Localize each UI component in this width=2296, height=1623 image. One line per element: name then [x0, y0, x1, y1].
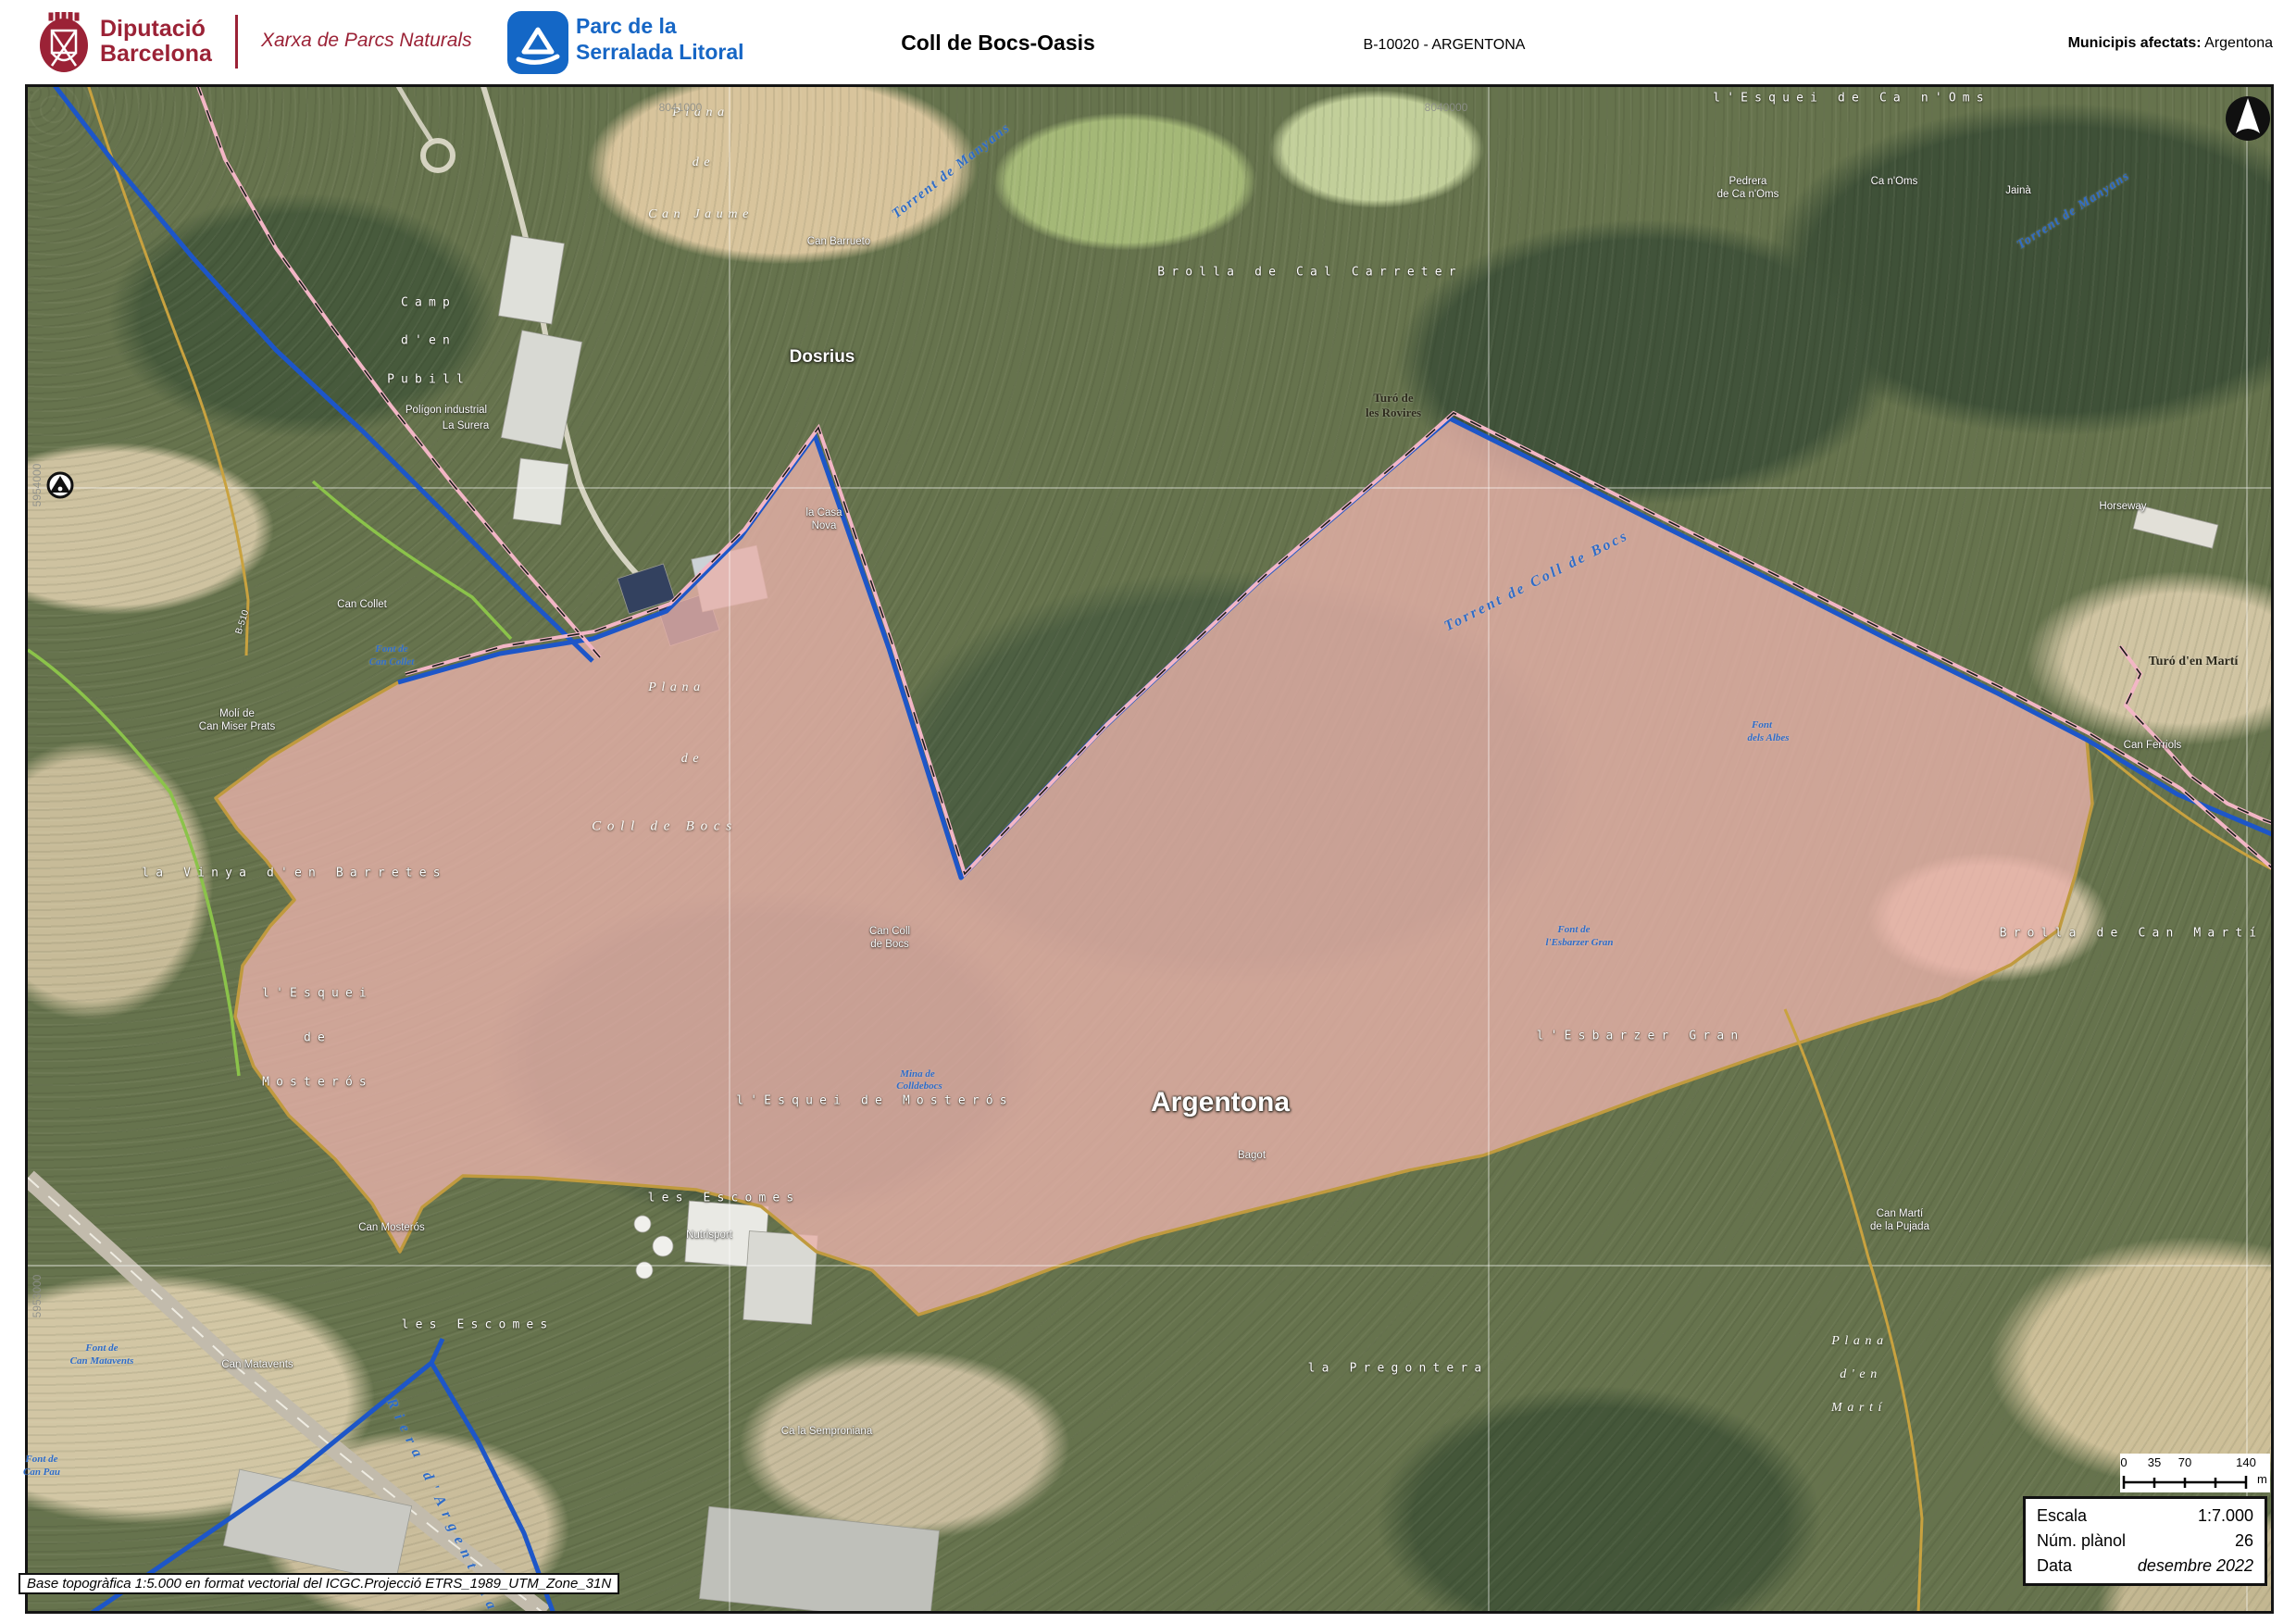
- xarxa-parcs-naturals-label: Xarxa de Parcs Naturals: [261, 30, 472, 52]
- local-road: [483, 86, 648, 585]
- map-info-box: Escala 1:7.000 Núm. plànol 26 Data desem…: [2023, 1496, 2267, 1586]
- data-label: Data: [2037, 1556, 2072, 1576]
- scale-tick-70: 70: [2178, 1455, 2191, 1469]
- municipis-afectats: Municipis afectats: Argentona: [2068, 35, 2273, 52]
- escala-value: 1:7.000: [2198, 1506, 2253, 1526]
- diputacio-wordmark: Diputació Barcelona: [100, 17, 212, 67]
- parc-serralada-litoral-logo-icon: [507, 11, 568, 74]
- num-planol-value: 26: [2235, 1531, 2253, 1551]
- scale-bar: 0 35 70 140 m: [2120, 1454, 2270, 1492]
- base-map-credit: Base topogràfica 1:5.000 en format vecto…: [19, 1573, 619, 1594]
- local-road-2: [398, 86, 431, 141]
- scale-tick-140: 140: [2236, 1455, 2256, 1469]
- header: Diputació Barcelona Xarxa de Parcs Natur…: [0, 0, 2296, 84]
- roundabout: [423, 141, 453, 170]
- info-row-escala: Escala 1:7.000: [2037, 1506, 2253, 1526]
- num-planol-label: Núm. plànol: [2037, 1531, 2126, 1551]
- page-title: Coll de Bocs-Oasis: [901, 31, 1095, 56]
- info-row-data: Data desembre 2022: [2037, 1556, 2253, 1576]
- protected-area-polygon: [216, 418, 2092, 1315]
- data-value: desembre 2022: [2138, 1556, 2253, 1576]
- escala-label: Escala: [2037, 1506, 2087, 1526]
- header-divider: [235, 15, 238, 69]
- municipis-value: Argentona: [2204, 35, 2273, 51]
- scale-tick-0: 0: [2120, 1455, 2127, 1469]
- north-arrow-icon: [2226, 96, 2270, 141]
- plan-code: B-10020 - ARGENTONA: [1364, 37, 1526, 54]
- diputacio-barcelona-logo-icon: [37, 12, 91, 73]
- scale-tick-35: 35: [2148, 1455, 2161, 1469]
- parc-wordmark: Parc de la Serralada Litoral: [576, 13, 744, 65]
- scale-bar-rule: [2120, 1474, 2270, 1491]
- info-row-num-planol: Núm. plànol 26: [2037, 1531, 2253, 1551]
- municipis-label: Municipis afectats:: [2068, 35, 2202, 51]
- map-overlay-graphics: [0, 0, 2296, 1623]
- summit-icon: [48, 473, 72, 497]
